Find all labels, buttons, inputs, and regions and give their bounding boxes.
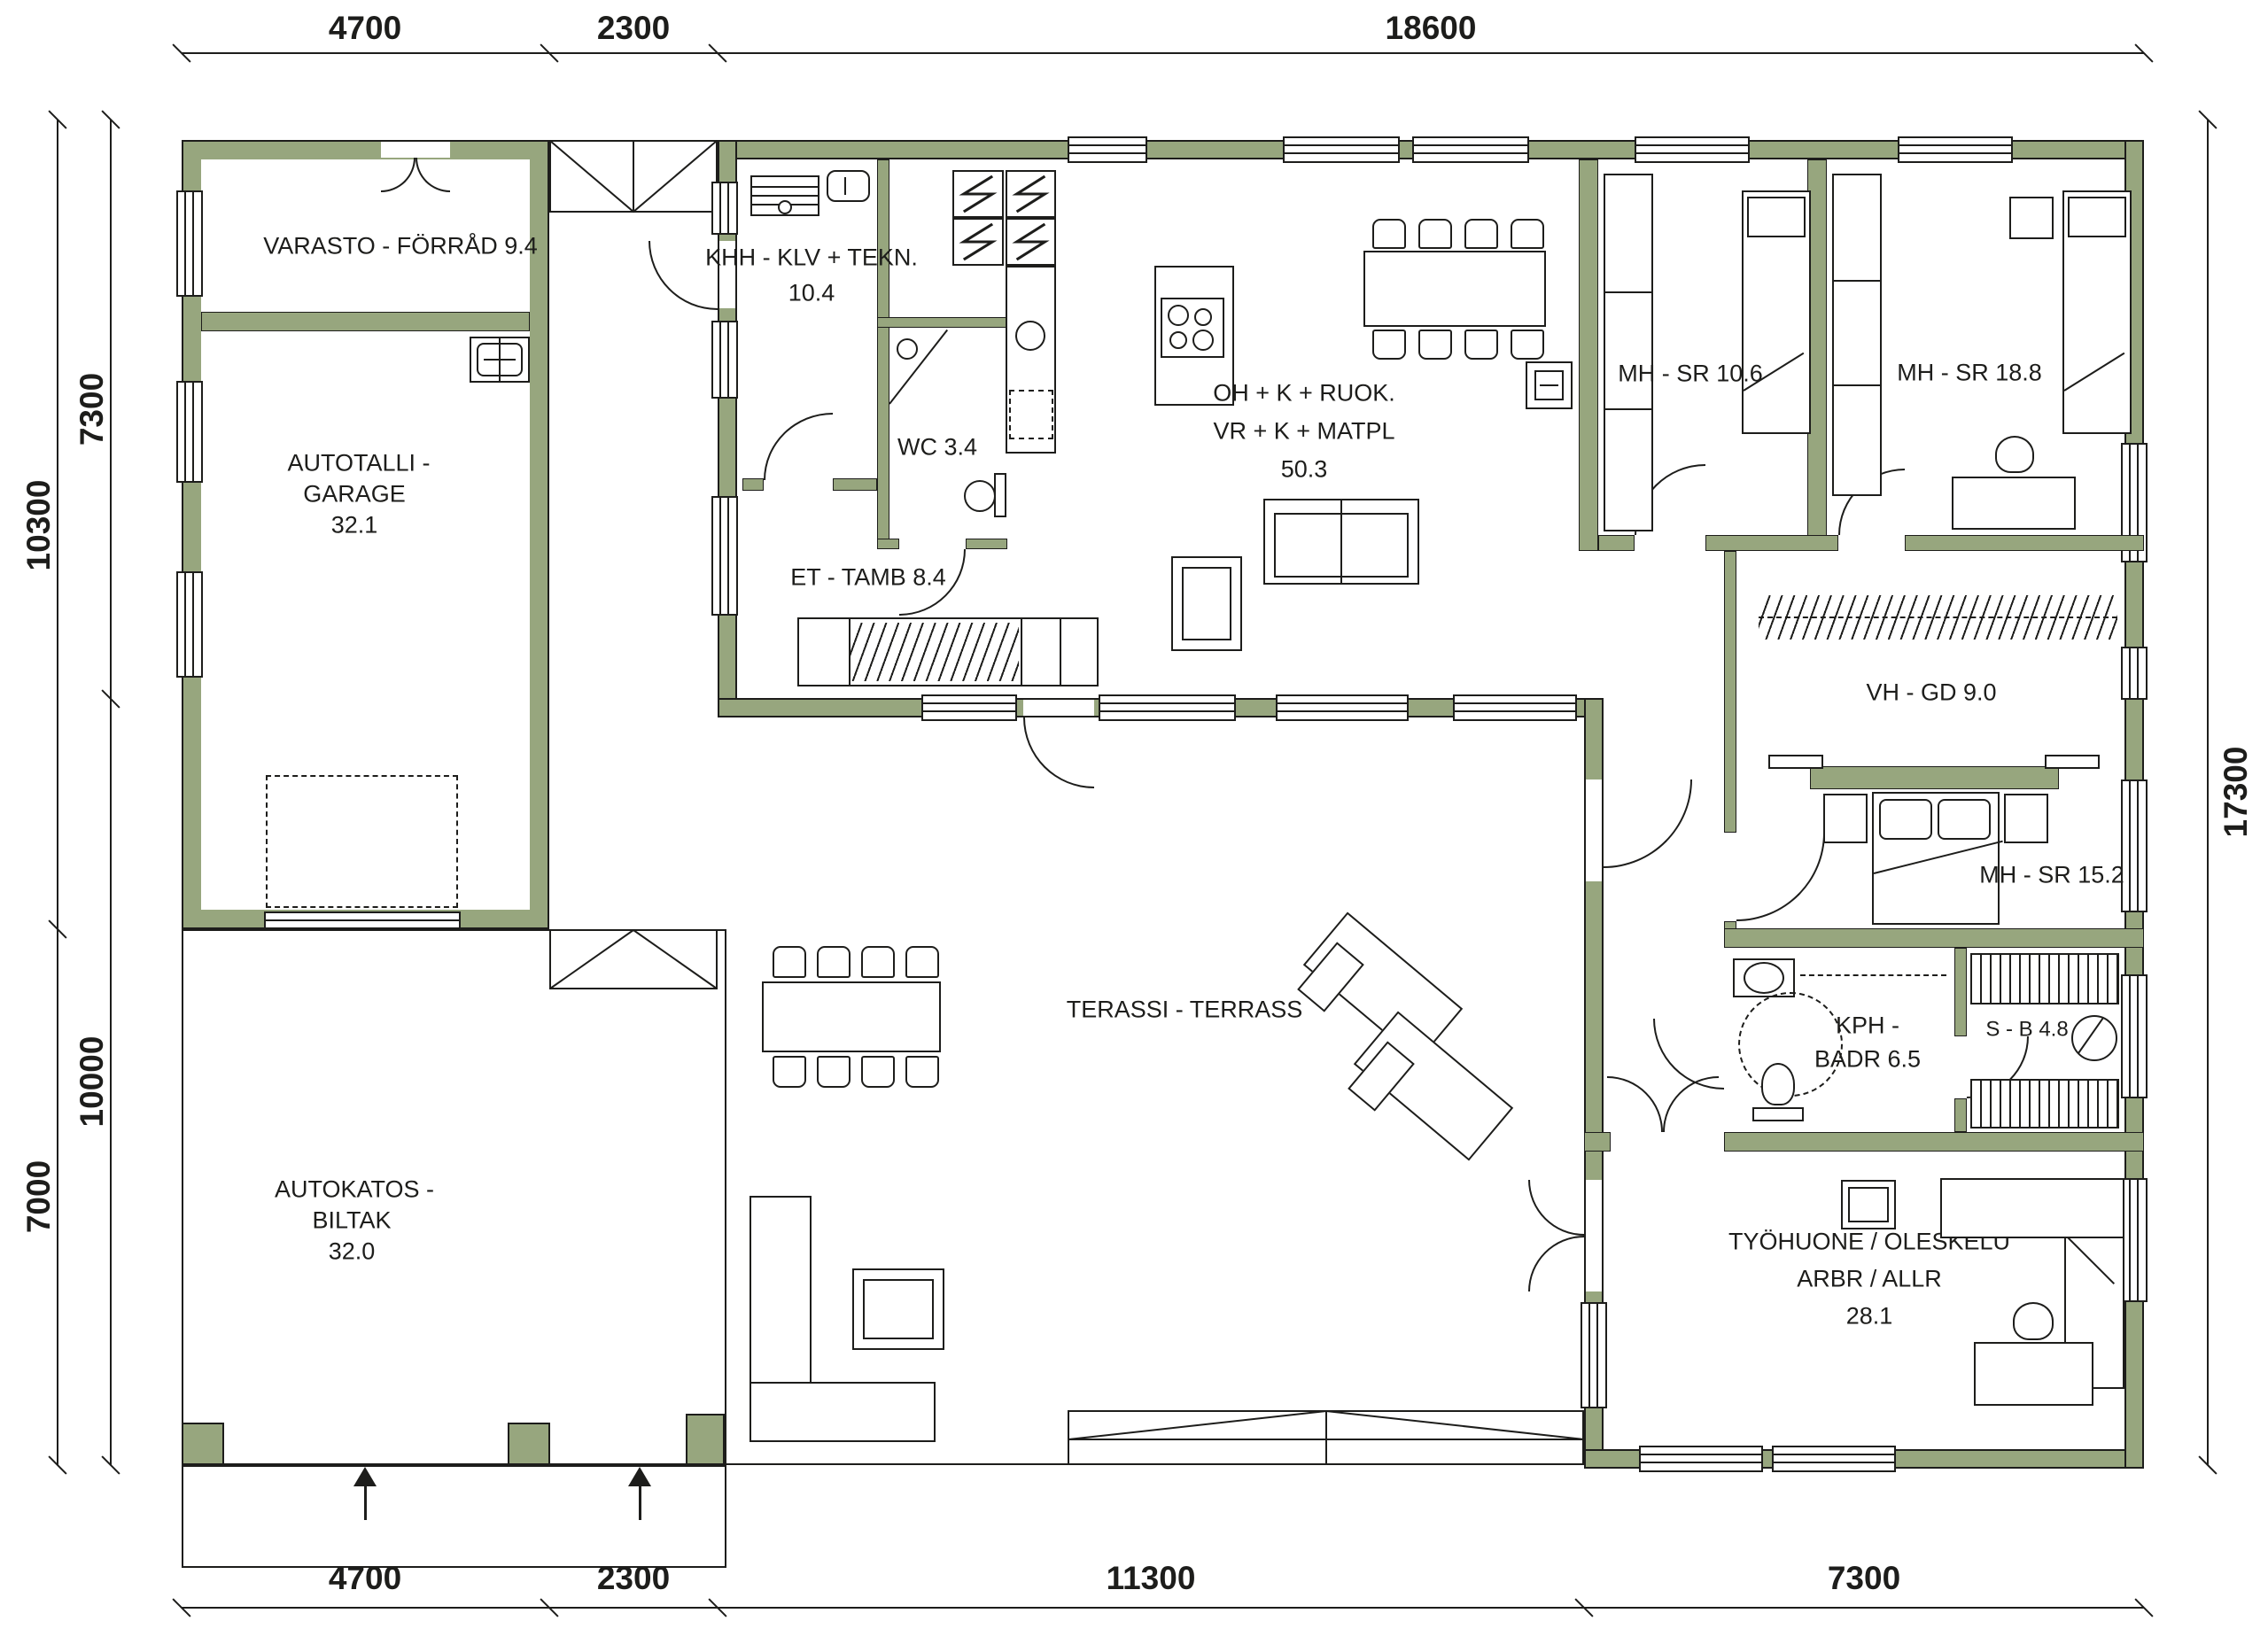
room-label-varasto: VARASTO - FÖRRÅD 9.4 — [263, 230, 538, 261]
kph-door-opening — [1726, 1019, 1735, 1090]
tall-cabinet-1 — [1006, 170, 1056, 218]
window-top-2 — [1283, 136, 1400, 163]
khh-kitchen-wall — [877, 159, 889, 549]
kph-sauna-wall-a — [1954, 948, 1967, 1036]
room-label-carport-2: BILTAK — [312, 1205, 391, 1236]
window-et — [711, 496, 738, 616]
room-label-khh-area: 10.4 — [788, 277, 835, 308]
window-tyohuone-south-2 — [1772, 1446, 1896, 1472]
kph-sink-bowl — [1744, 962, 1784, 994]
room-label-carport-area: 32.0 — [329, 1236, 376, 1267]
entrance-door-opening — [1023, 700, 1094, 716]
burner-1 — [1168, 305, 1189, 326]
tyohuone-desk — [1974, 1342, 2093, 1406]
floor-plan: 4700 2300 18600 4700 2300 11300 7300 103… — [0, 0, 2268, 1652]
dining-chair — [1464, 219, 1498, 249]
window-top-1 — [1068, 136, 1147, 163]
fridge-icon — [952, 170, 1004, 218]
window-mh152 — [2121, 779, 2148, 912]
entrance-door-arc — [1023, 717, 1094, 788]
carport-pillar-2 — [508, 1423, 550, 1465]
carport-pillar-1 — [182, 1423, 224, 1465]
dishwasher-icon — [1009, 390, 1053, 439]
wc-shower-icon — [897, 338, 918, 360]
bedrooms-bottom-wall-a — [1598, 535, 1635, 551]
room-label-carport-1: AUTOKATOS - — [275, 1174, 434, 1205]
khh-door-arc — [764, 413, 833, 480]
window-sauna — [2121, 974, 2148, 1098]
mh152-nightstand-left — [1823, 794, 1868, 843]
room-label-living-1: OH + K + RUOK. — [1213, 377, 1395, 408]
kph-toilet-bowl — [1761, 1063, 1795, 1105]
et-wardrobe-hatch — [850, 623, 1019, 681]
dim-left-7300: 7300 — [74, 373, 111, 446]
armchair-seat — [1182, 567, 1231, 640]
window-garage-2 — [176, 571, 203, 678]
canopy-lower — [549, 929, 718, 989]
room-label-sauna: S - B 4.8 — [1985, 1015, 2068, 1043]
terrace-bottom-line — [726, 1463, 1068, 1465]
window-khh-2 — [711, 321, 738, 399]
sofa-divider — [1340, 500, 1342, 583]
kph-bottom-wall — [1724, 1132, 2144, 1152]
wc-top-wall — [877, 317, 1007, 328]
tyohuone-sofa-top — [1940, 1178, 2124, 1238]
freezer-icon — [952, 218, 1004, 266]
window-top-4 — [1635, 136, 1750, 163]
window-tyohuone-right — [2121, 1178, 2148, 1302]
window-living-south-2 — [1276, 694, 1409, 721]
terrace-chair — [905, 946, 939, 978]
room-label-garage-2: GARAGE — [303, 478, 406, 509]
dim-line-right — [2207, 120, 2209, 1465]
sauna-bench-top — [1970, 953, 2119, 1004]
tyohuone-door-arc-right — [1663, 1076, 1719, 1132]
dim-bottom-7300: 7300 — [1828, 1560, 1900, 1597]
dining-chair — [1418, 219, 1452, 249]
mh106-pillow — [1747, 197, 1806, 237]
window-garage-1 — [176, 381, 203, 483]
mh152-nightstand-right — [2004, 794, 2048, 843]
room-label-tyohuone-2: ARBR / ALLR — [1797, 1263, 1942, 1294]
dim-right-17300: 17300 — [2218, 747, 2255, 838]
dining-chair — [1418, 330, 1452, 360]
terrace-chair — [773, 1056, 806, 1088]
khh-et-wall-a — [742, 478, 764, 491]
hall-terrace-door-arc — [1604, 779, 1692, 868]
kph-top-wall — [1724, 928, 2144, 948]
carport-pillar-3 — [686, 1414, 725, 1465]
terrace-french-door-arc-top — [1528, 1180, 1584, 1236]
window-top-5 — [1898, 136, 2013, 163]
dim-top-2300: 2300 — [597, 10, 670, 47]
dining-chair — [1511, 219, 1544, 249]
dim-line-left-outer — [57, 120, 58, 1465]
sauna-bench-bottom — [1970, 1079, 2119, 1128]
washer-drain-icon — [778, 200, 792, 214]
window-tyohuone-terrace — [1581, 1302, 1607, 1408]
wc-toilet-tank — [994, 473, 1006, 517]
living-mh106-wall — [1579, 159, 1598, 551]
entrance-arrow-2-stem — [639, 1486, 641, 1520]
terrace-chair — [905, 1056, 939, 1088]
window-varasto — [176, 190, 203, 297]
bedrooms-bottom-wall-b — [1705, 535, 1838, 551]
room-label-vhgd: VH - GD 9.0 — [1866, 677, 1996, 708]
vhgd-rail-line — [1759, 617, 2117, 618]
mh188-nightstand — [2009, 197, 2054, 239]
tyohuone-side-table-inner — [1848, 1187, 1889, 1222]
car-outline — [266, 775, 458, 908]
dim-left-10000: 10000 — [74, 1036, 111, 1128]
room-label-garage-area: 32.1 — [331, 509, 378, 540]
khh-et-wall-b — [833, 478, 877, 491]
terrace-chair — [817, 946, 850, 978]
dim-line-left-inner — [110, 120, 112, 1465]
dining-chair — [1511, 330, 1544, 360]
window-entrance-sidelight — [921, 694, 1017, 721]
kph-sauna-wall-b — [1954, 1098, 1967, 1132]
dining-chair — [1372, 219, 1406, 249]
wc-bottom-wall-a — [877, 539, 899, 549]
varasto-door-opening — [381, 142, 450, 158]
dim-top-4700: 4700 — [329, 10, 401, 47]
entrance-arrow-2 — [628, 1467, 651, 1486]
dim-left-7000: 7000 — [20, 1160, 58, 1233]
garage-door — [264, 911, 461, 929]
room-label-khh: KHH - KLV + TEKN. — [705, 242, 918, 273]
room-label-tyohuone-area: 28.1 — [1846, 1300, 1893, 1331]
terrace-coffee-table-inner — [863, 1279, 934, 1339]
burner-3 — [1169, 331, 1187, 349]
varasto-garage-wall — [201, 312, 530, 331]
khh-sink-icon — [827, 170, 870, 202]
wc-shower-line — [889, 330, 948, 405]
heater-cross-h — [484, 359, 516, 361]
burner-2 — [1194, 308, 1212, 326]
sauna-stove-icon — [2071, 1015, 2117, 1061]
room-label-kph-2: BADR 6.5 — [1814, 1043, 1921, 1074]
window-tyohuone-south-1 — [1639, 1446, 1763, 1472]
vhgd-left-wall-a — [1724, 551, 1736, 833]
et-wardrobe-div-2 — [1021, 617, 1022, 686]
dim-line-top — [182, 52, 2144, 54]
terrace-sofa-horizontal — [750, 1382, 936, 1442]
canopy-top — [549, 140, 718, 213]
mh152-shelf-left — [1768, 755, 1823, 769]
room-label-mh188: MH - SR 18.8 — [1897, 357, 2042, 388]
dining-chair — [1372, 330, 1406, 360]
window-living-south-3 — [1453, 694, 1577, 721]
terrace-chair — [861, 1056, 895, 1088]
window-vhgd — [2121, 647, 2148, 700]
mh152-pillow-2 — [1938, 799, 1991, 840]
tall-cabinet-2 — [1006, 218, 1056, 266]
dim-bottom-11300: 11300 — [1107, 1560, 1196, 1597]
dim-line-bottom — [182, 1607, 2144, 1609]
mh188-desk — [1952, 477, 2076, 530]
dim-left-10300: 10300 — [20, 480, 58, 571]
window-top-3 — [1412, 136, 1529, 163]
mh106-wardrobe — [1604, 174, 1653, 531]
room-label-mh106: MH - SR 10.6 — [1618, 358, 1763, 389]
carport-outline — [182, 929, 726, 1465]
room-label-living-area: 50.3 — [1281, 454, 1328, 485]
entrance-arrow-1 — [353, 1467, 377, 1486]
hall-terrace-door-opening — [1586, 779, 1602, 881]
kph-toilet-tank — [1752, 1107, 1804, 1121]
dining-chair — [1464, 330, 1498, 360]
bedrooms-bottom-wall-c — [1905, 535, 2144, 551]
tyohuone-desk-chair — [2013, 1302, 2054, 1340]
terrace-table — [762, 981, 941, 1052]
mh152-shelf-right — [2045, 755, 2100, 769]
mh188-wardrobe — [1832, 174, 1882, 496]
mh152-pillow-1 — [1879, 799, 1932, 840]
room-label-living-2: VR + K + MATPL — [1213, 415, 1394, 446]
burner-4 — [1192, 330, 1214, 351]
kph-counter-line — [1800, 974, 1946, 976]
cooktop-icon — [1161, 298, 1224, 358]
room-label-kph-1: KPH - — [1836, 1010, 1899, 1041]
wc-toilet-bowl — [964, 480, 996, 512]
room-label-et: ET - TAMB 8.4 — [790, 562, 946, 593]
terrace-steps — [1068, 1410, 1584, 1465]
et-wardrobe-div-1 — [849, 617, 850, 686]
terrace-chair — [817, 1056, 850, 1088]
fireplace-cross — [1540, 384, 1558, 386]
wc-bottom-wall-b — [966, 539, 1007, 549]
kitchen-sink-icon — [1015, 321, 1045, 351]
terrace-chair — [773, 946, 806, 978]
room-label-terrace: TERASSI - TERRASS — [1067, 994, 1303, 1025]
terrace-chair — [861, 946, 895, 978]
mh188-pillow — [2068, 197, 2126, 237]
mh152-door-arc — [1736, 833, 1825, 921]
mh188-desk-chair — [1995, 436, 2034, 473]
room-label-wc: WC 3.4 — [897, 431, 977, 462]
tyohuone-wall-stub — [1584, 1132, 1611, 1152]
dining-table — [1363, 251, 1546, 327]
tyohuone-door-arc-left — [1607, 1076, 1663, 1132]
window-khh — [711, 182, 738, 235]
khh-sink-cross — [844, 177, 846, 195]
terrace-french-door-opening — [1586, 1180, 1602, 1291]
terrace-french-door-arc-bottom — [1528, 1236, 1584, 1291]
room-label-mh152: MH - SR 15.2 — [1979, 859, 2124, 890]
et-wardrobe-div-3 — [1060, 617, 1061, 686]
room-label-garage-1: AUTOTALLI - — [287, 447, 430, 478]
mh152-headboard-wall — [1810, 766, 2059, 789]
entrance-arrow-1-stem — [364, 1486, 367, 1520]
dim-top-18600: 18600 — [1386, 10, 1477, 47]
window-living-south-1 — [1099, 694, 1236, 721]
